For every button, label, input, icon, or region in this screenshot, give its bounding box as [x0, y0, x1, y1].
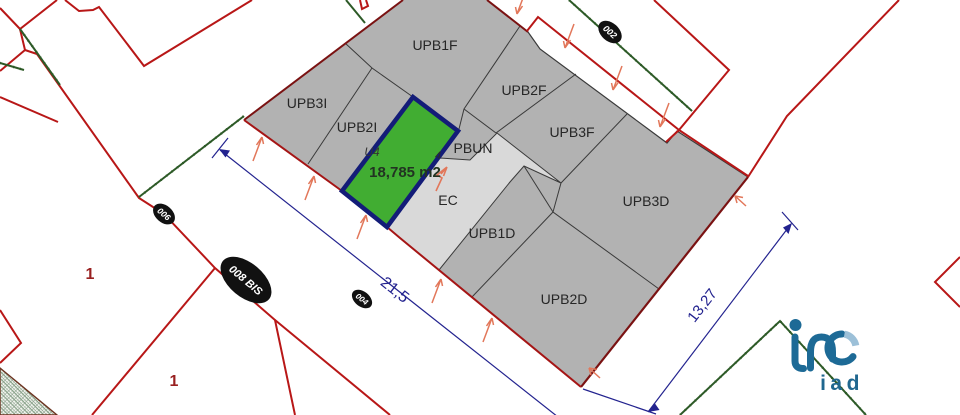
svg-text:iad: iad [820, 372, 864, 395]
svg-text:UPB3D: UPB3D [623, 193, 670, 209]
svg-text:UPB2I: UPB2I [337, 119, 377, 135]
svg-text:UPB2D: UPB2D [541, 291, 588, 307]
svg-text:1: 1 [86, 266, 95, 283]
svg-text:U4: U4 [364, 145, 380, 159]
svg-text:18,785 m2: 18,785 m2 [369, 164, 441, 181]
svg-text:EC: EC [438, 192, 457, 208]
svg-text:4: 4 [435, 150, 441, 162]
svg-text:UPB1D: UPB1D [469, 225, 516, 241]
svg-text:PBUN: PBUN [454, 140, 493, 156]
svg-text:1: 1 [170, 373, 179, 390]
svg-text:UPB2F: UPB2F [501, 82, 546, 98]
svg-text:UPB3F: UPB3F [549, 124, 594, 140]
svg-text:UPB3I: UPB3I [287, 95, 327, 111]
svg-text:UPB1F: UPB1F [412, 37, 457, 53]
